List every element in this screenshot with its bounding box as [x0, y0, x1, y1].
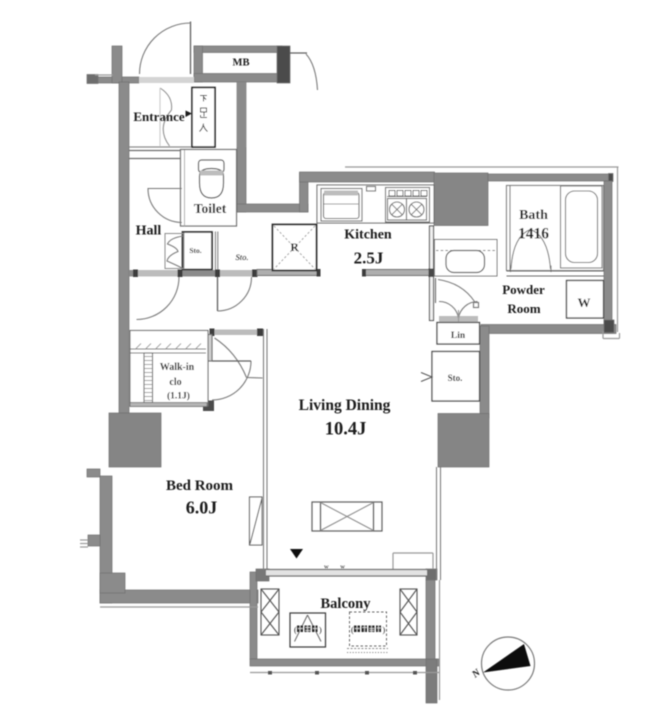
svg-text:w w: w w	[324, 564, 350, 571]
svg-text:Powder: Powder	[502, 282, 545, 297]
svg-text:(: (	[351, 626, 354, 635]
svg-text:Balcony: Balcony	[321, 596, 372, 612]
svg-text:2.5J: 2.5J	[354, 249, 384, 268]
svg-text:Kitchen: Kitchen	[344, 228, 392, 243]
svg-text:Living Dining: Living Dining	[299, 397, 391, 414]
svg-text:clo: clo	[169, 377, 181, 388]
svg-text:Bath: Bath	[519, 208, 548, 223]
svg-text:Walk-in: Walk-in	[160, 362, 195, 373]
svg-text:Sto.: Sto.	[236, 252, 249, 262]
svg-text:Entrance: Entrance	[133, 109, 185, 124]
svg-text:Sto.: Sto.	[448, 373, 463, 383]
svg-text:Lin: Lin	[451, 331, 466, 341]
svg-text:Bed Room: Bed Room	[166, 478, 234, 494]
svg-text:(1.1J): (1.1J)	[167, 391, 190, 402]
svg-text:Room: Room	[507, 301, 540, 316]
svg-text:(: (	[294, 626, 297, 635]
svg-text:Toilet: Toilet	[194, 201, 227, 216]
svg-text:): )	[383, 626, 386, 635]
svg-text:1416: 1416	[518, 226, 549, 243]
svg-text:Hall: Hall	[136, 224, 162, 239]
svg-text:10.4J: 10.4J	[325, 420, 367, 440]
svg-text:Sto.: Sto.	[189, 246, 201, 255]
svg-text:W: W	[578, 295, 591, 310]
svg-text:R: R	[290, 242, 299, 254]
svg-text:): )	[319, 626, 322, 635]
svg-text:MB: MB	[233, 58, 250, 69]
svg-text:6.0J: 6.0J	[186, 498, 218, 518]
